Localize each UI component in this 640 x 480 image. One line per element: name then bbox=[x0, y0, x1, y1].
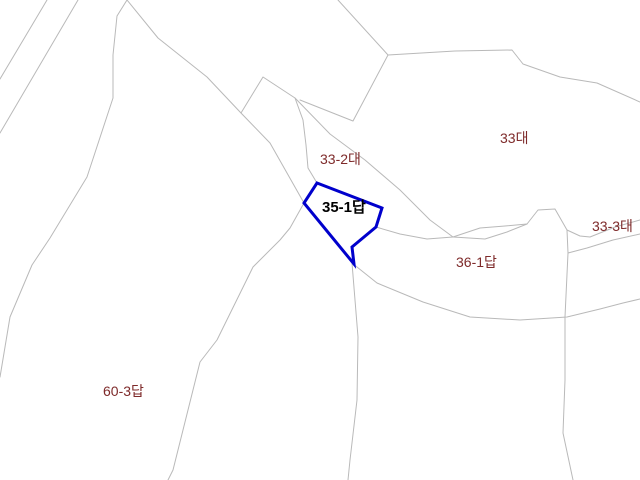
boundary-line-east-branch bbox=[568, 234, 640, 253]
boundary-line-south-curve-36-1 bbox=[352, 263, 640, 320]
boundary-line-apex-diagonal bbox=[241, 77, 453, 237]
boundary-line-lens-upper bbox=[453, 224, 527, 237]
selected-parcel-outline[interactable] bbox=[304, 183, 382, 264]
boundary-line-lens-lower bbox=[453, 224, 527, 239]
boundary-line-west-curve bbox=[0, 0, 127, 377]
parcel-boundaries-svg bbox=[0, 0, 640, 480]
cadastral-map-viewport: 33-2대33대33-3대35-1답36-1답60-3답 bbox=[0, 0, 640, 480]
boundary-line-east-boundary-60-3 bbox=[168, 203, 304, 480]
boundary-line-road-edge-west-2 bbox=[0, 0, 78, 133]
boundary-line-east-vertical bbox=[563, 230, 573, 480]
boundary-line-west-boundary-36-1 bbox=[348, 263, 358, 480]
boundary-line-plateau-east bbox=[527, 209, 640, 237]
boundary-line-north-boundary-33 bbox=[338, 0, 640, 102]
boundary-line-v-branch-to-top bbox=[300, 55, 388, 121]
boundary-line-curve-to-parcel-a bbox=[295, 98, 317, 183]
boundary-line-strip-north bbox=[127, 0, 304, 203]
boundary-line-road-edge-west-1 bbox=[0, 0, 47, 79]
